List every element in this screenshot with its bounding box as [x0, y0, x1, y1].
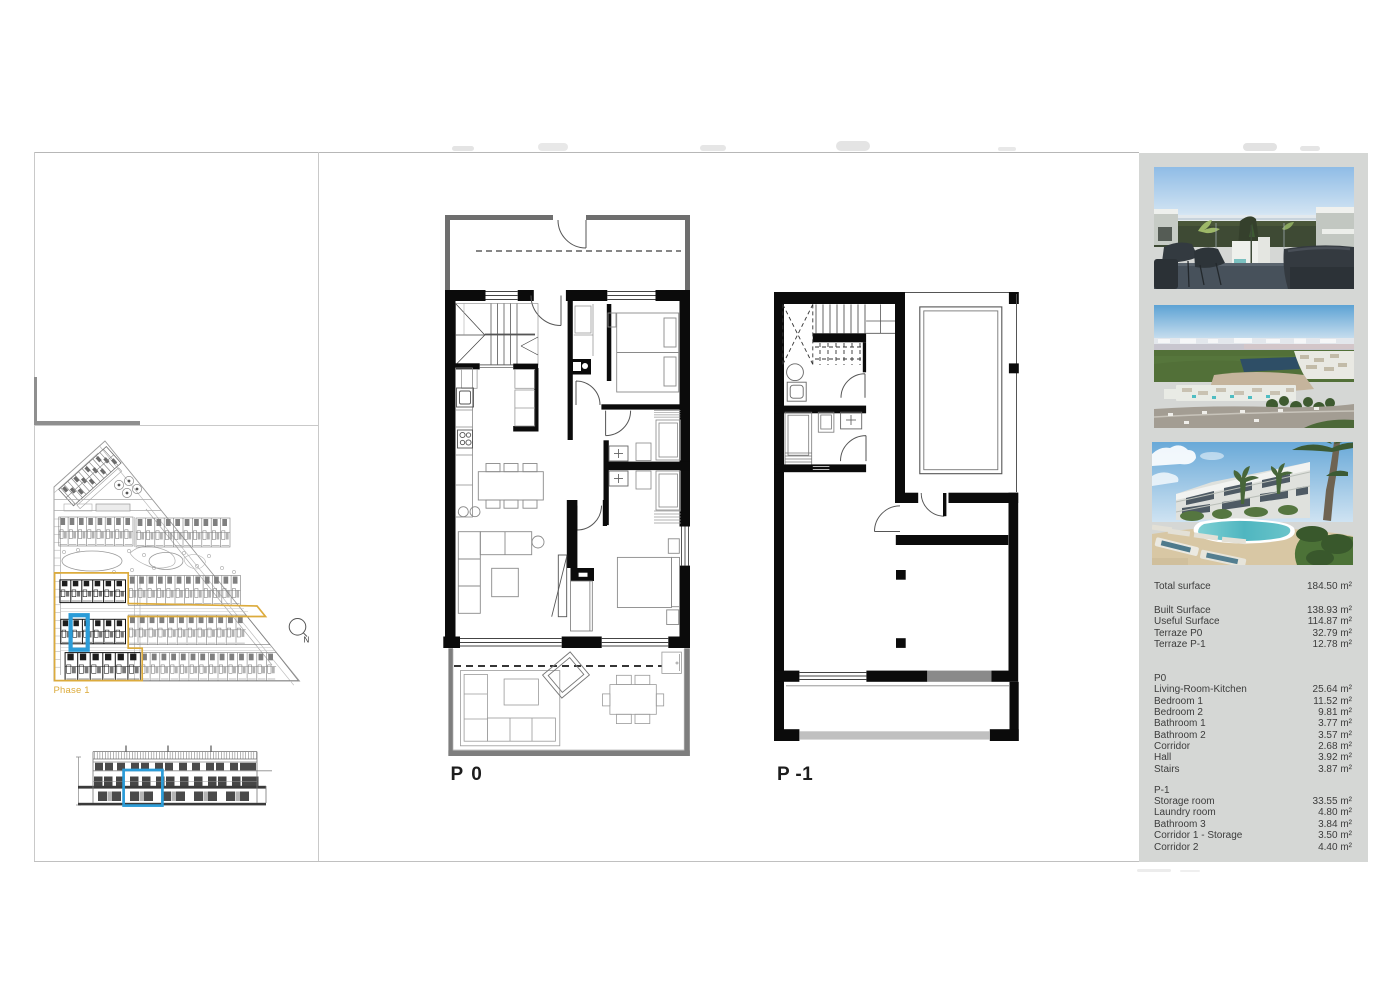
svg-text:N: N: [304, 636, 310, 645]
svg-text:Phase 1: Phase 1: [54, 685, 90, 696]
